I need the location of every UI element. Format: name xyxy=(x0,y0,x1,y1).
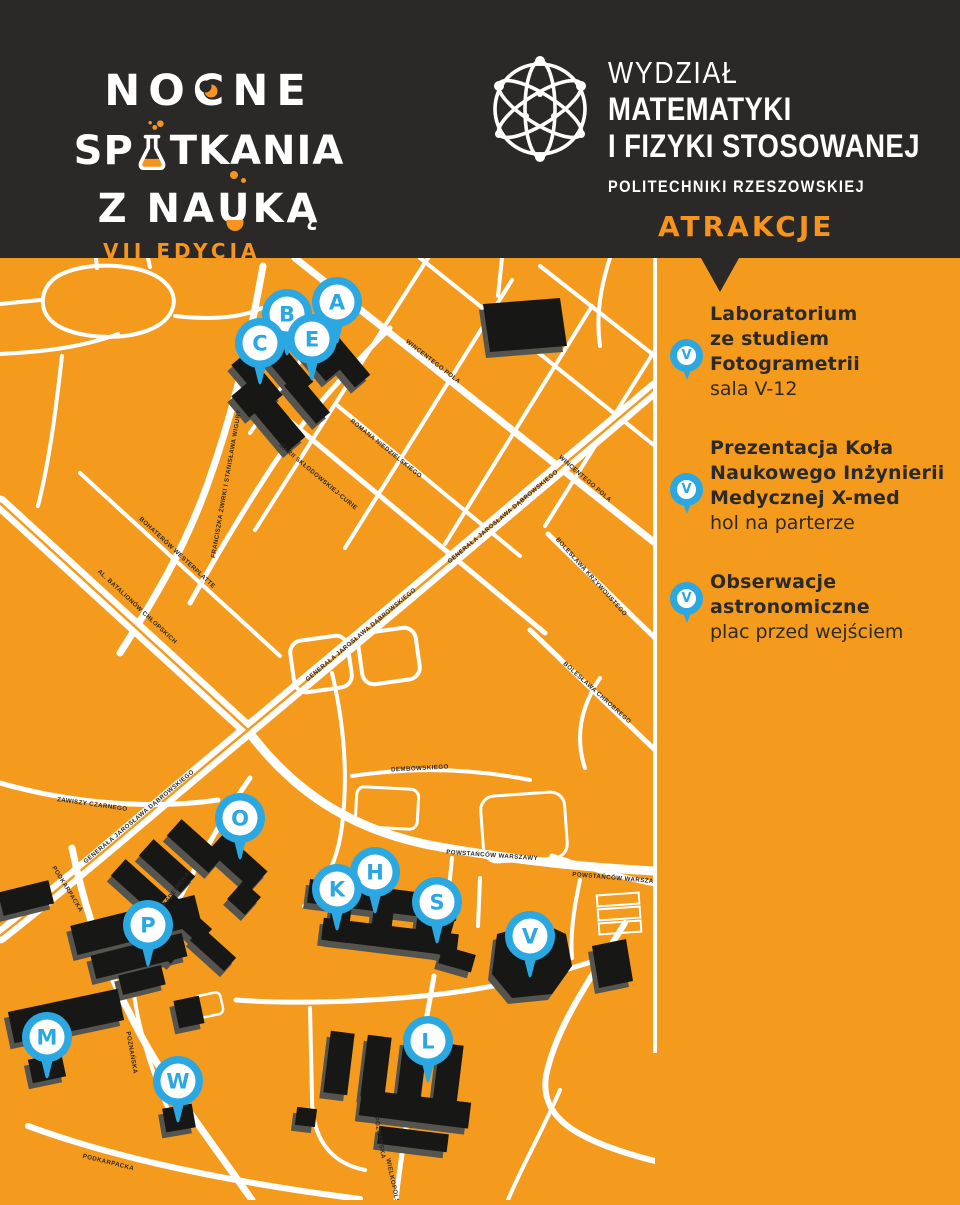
pin-letter: V xyxy=(681,482,691,497)
attraction-item: VPrezentacja KołaNaukowego InżynieriiMed… xyxy=(655,436,960,536)
svg-text:W: W xyxy=(166,1070,189,1094)
attraction-item: VLaboratoriumze studiemFotogrametriisala… xyxy=(655,302,960,402)
pin-stem xyxy=(682,501,692,514)
pin-letter: V xyxy=(681,348,691,363)
attractions-pointer-triangle xyxy=(701,258,739,292)
svg-text:K: K xyxy=(329,878,346,902)
svg-text:P: P xyxy=(140,914,155,938)
svg-text:S: S xyxy=(429,891,444,915)
location-pin-icon: V xyxy=(670,339,703,372)
pin-stem xyxy=(682,610,692,623)
header: NOCNE SP TKANIA Z NAUKĄ VII EDYCJA xyxy=(0,0,960,258)
crescent-moon-icon xyxy=(204,85,217,98)
svg-text:E: E xyxy=(305,328,319,352)
faculty-line-3: I FIZYKI STOSOWANEJ xyxy=(608,128,920,165)
attractions-sidebar: VLaboratoriumze studiemFotogrametriisala… xyxy=(655,258,960,1200)
svg-text:O: O xyxy=(231,807,249,831)
attraction-location: hol na parterze xyxy=(710,511,945,536)
event-logo: NOCNE SP TKANIA Z NAUKĄ VII EDYCJA xyxy=(73,62,345,264)
pin-stem xyxy=(682,367,692,380)
attractions-heading: ATRAKCJE xyxy=(658,210,834,243)
logo-line-spotkania: SP TKANIA xyxy=(73,120,345,180)
logo-line-nocne: NOCNE xyxy=(73,62,345,120)
svg-text:M: M xyxy=(37,1026,58,1050)
location-pin-icon: V xyxy=(670,473,703,506)
attraction-title-line: Naukowego Inżynierii xyxy=(710,461,945,486)
attractions-list: VLaboratoriumze studiemFotogrametriisala… xyxy=(655,258,960,645)
faculty-line-2: MATEMATYKI xyxy=(608,91,920,128)
attraction-location: sala V-12 xyxy=(710,377,860,402)
svg-text:V: V xyxy=(522,925,539,949)
attraction-title-line: astronomiczne xyxy=(710,595,903,620)
poster-root: { "header": { "logo": { "line1_pre": "NO… xyxy=(0,0,960,1200)
edition-label: VII EDYCJA xyxy=(73,238,345,264)
faculty-line-4: POLITECHNIKI RZESZOWSKIEJ xyxy=(608,168,920,205)
attraction-title-line: Prezentacja Koła xyxy=(710,436,945,461)
attraction-item: VObserwacjeastronomiczneplac przed wejśc… xyxy=(655,570,960,645)
svg-text:L: L xyxy=(421,1030,434,1054)
location-pin-icon: V xyxy=(670,582,703,615)
bubble-icon xyxy=(241,178,246,183)
svg-text:A: A xyxy=(329,291,346,315)
faculty-atom-logo xyxy=(488,50,592,173)
attraction-title-line: Medycznej X-med xyxy=(710,486,945,511)
flask-icon xyxy=(136,120,168,170)
attraction-title-line: Fotogrametrii xyxy=(710,352,860,377)
faculty-name: WYDZIAŁ MATEMATYKI I FIZYKI STOSOWANEJ P… xyxy=(608,54,920,205)
campus-map: WINCENTEGO POLAWINCENTEGO POLAFRANCISZKA… xyxy=(0,258,655,1200)
attraction-title-line: ze studiem xyxy=(710,327,860,352)
svg-text:H: H xyxy=(366,861,384,885)
svg-text:B: B xyxy=(279,303,295,327)
pin-letter: V xyxy=(681,591,691,606)
test-tube-u-glyph: U xyxy=(217,180,252,238)
faculty-line-1: WYDZIAŁ xyxy=(608,54,920,91)
svg-text:C: C xyxy=(252,332,267,356)
attraction-location: plac przed wejściem xyxy=(710,620,903,645)
logo-line-z-nauka: Z NAUKĄ xyxy=(73,180,345,238)
attraction-title-line: Laboratorium xyxy=(710,302,860,327)
attraction-title-line: Obserwacje xyxy=(710,570,903,595)
moon-c-glyph: C xyxy=(193,62,233,120)
